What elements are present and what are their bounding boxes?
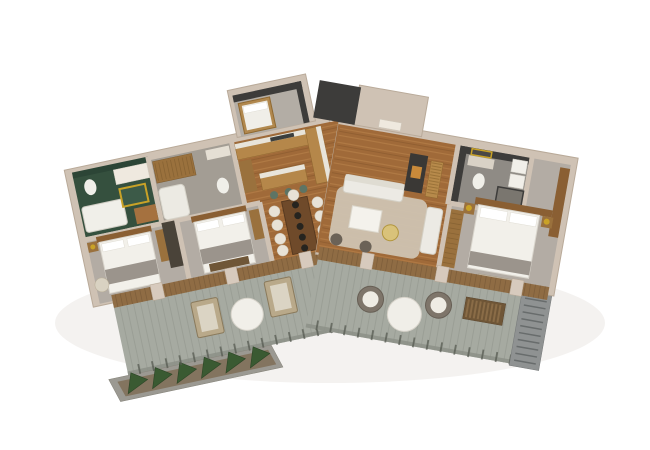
dryer [508,174,525,189]
parapet-post-6 [509,279,524,297]
parapet-post-5 [435,265,450,283]
washer [511,159,528,174]
floorplan-svg [0,0,650,450]
parapet-post-4 [360,252,375,270]
coffee-table-living [349,206,382,233]
fireplace-inset [410,166,422,180]
floorplan-stage [0,0,650,450]
entry-dark-hall [313,80,361,125]
